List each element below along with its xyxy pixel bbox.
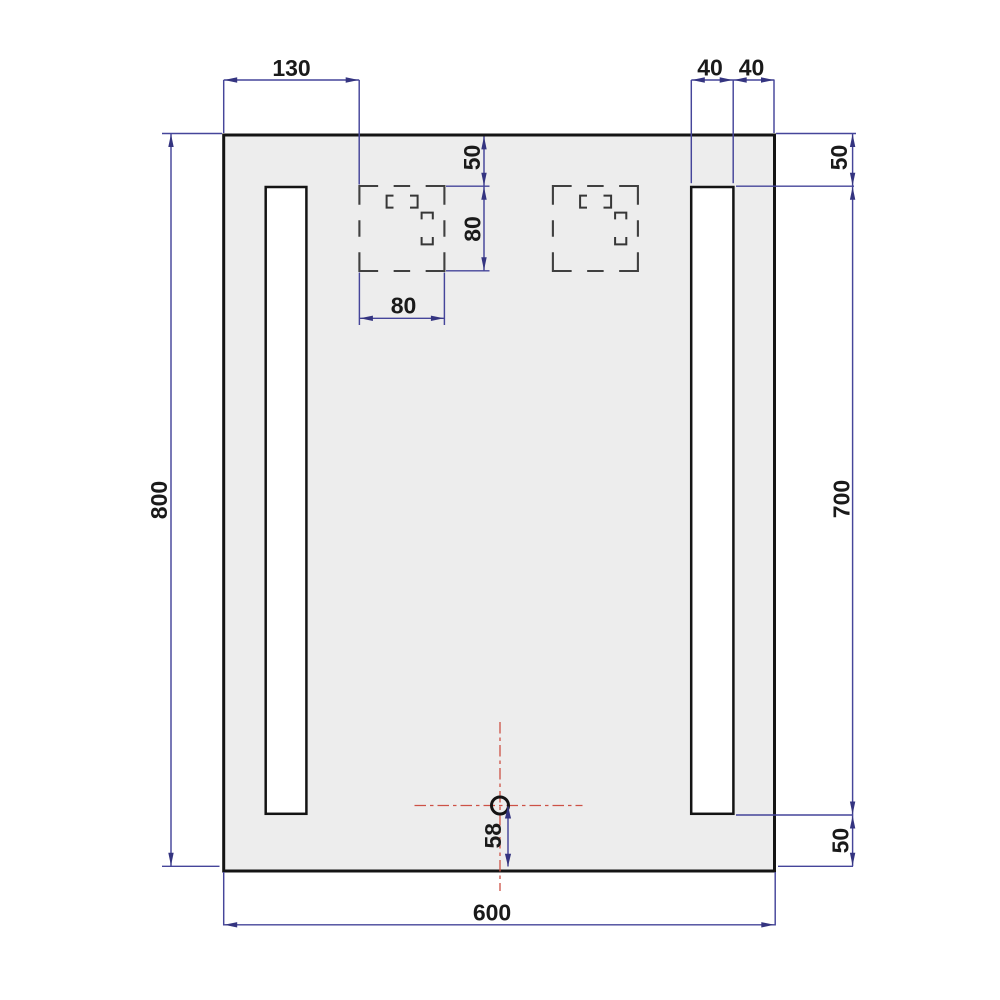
- svg-text:80: 80: [459, 216, 485, 242]
- svg-text:130: 130: [272, 55, 310, 81]
- svg-text:50: 50: [826, 145, 852, 171]
- svg-text:50: 50: [459, 145, 485, 171]
- svg-text:800: 800: [146, 481, 172, 519]
- svg-text:40: 40: [739, 54, 765, 80]
- svg-text:40: 40: [697, 54, 723, 80]
- svg-text:50: 50: [828, 828, 854, 854]
- svg-text:700: 700: [829, 480, 855, 518]
- svg-text:600: 600: [473, 900, 511, 926]
- svg-text:80: 80: [391, 292, 417, 318]
- svg-text:58: 58: [480, 823, 506, 849]
